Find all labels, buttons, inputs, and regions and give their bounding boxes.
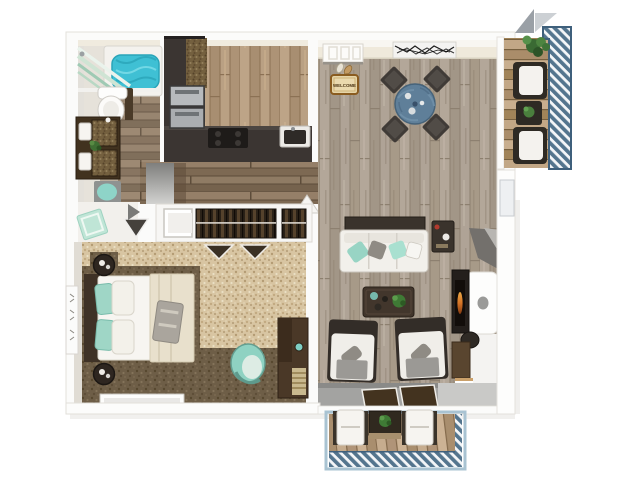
svg-text:WELCOME: WELCOME (333, 83, 356, 88)
